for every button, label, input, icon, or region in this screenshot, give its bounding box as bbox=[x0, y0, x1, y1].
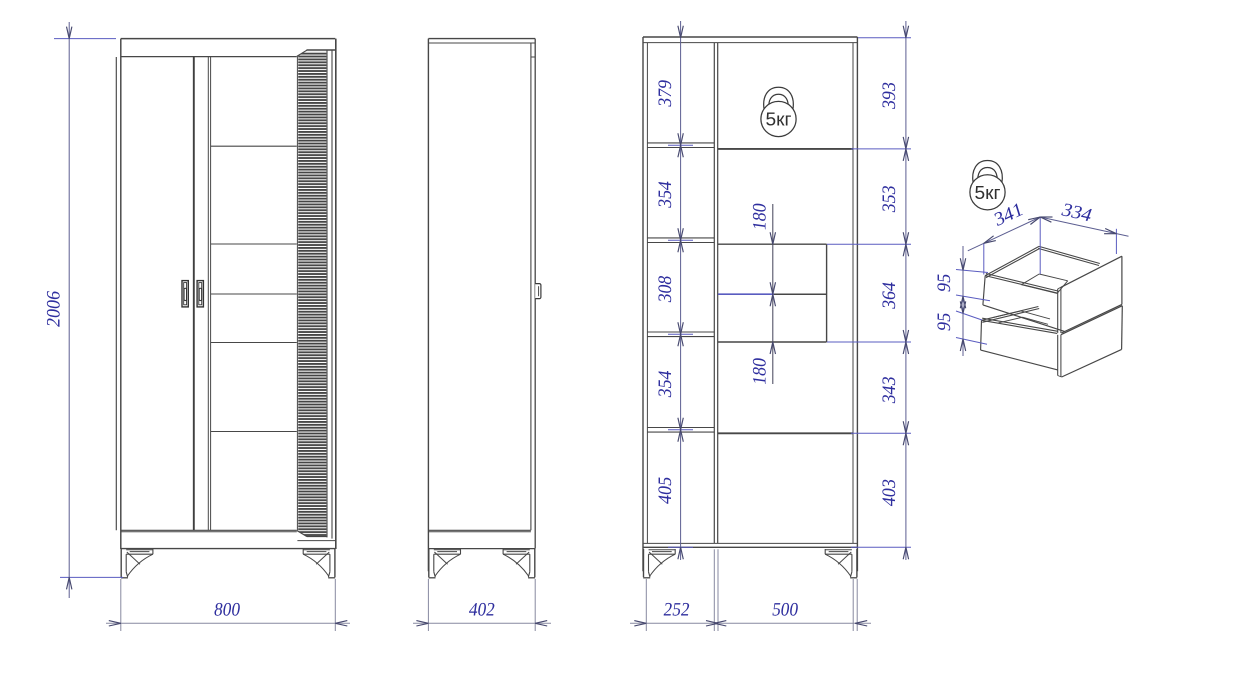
svg-text:500: 500 bbox=[771, 599, 800, 620]
svg-text:403: 403 bbox=[879, 478, 900, 508]
svg-text:180: 180 bbox=[750, 356, 771, 386]
svg-text:343: 343 bbox=[879, 375, 900, 405]
svg-text:5кг: 5кг bbox=[975, 183, 1001, 203]
svg-text:364: 364 bbox=[879, 280, 900, 310]
svg-text:800: 800 bbox=[213, 599, 242, 620]
svg-text:354: 354 bbox=[655, 179, 676, 209]
svg-text:95: 95 bbox=[934, 311, 955, 332]
svg-text:354: 354 bbox=[655, 369, 676, 399]
svg-text:379: 379 bbox=[655, 78, 676, 108]
svg-text:405: 405 bbox=[655, 475, 676, 505]
svg-text:2006: 2006 bbox=[43, 289, 64, 328]
svg-text:353: 353 bbox=[879, 184, 900, 214]
svg-text:402: 402 bbox=[467, 599, 496, 620]
svg-text:308: 308 bbox=[655, 274, 676, 304]
svg-text:5кг: 5кг bbox=[766, 110, 792, 130]
svg-text:252: 252 bbox=[662, 599, 691, 620]
svg-text:95: 95 bbox=[934, 272, 955, 293]
svg-text:393: 393 bbox=[879, 81, 900, 111]
svg-text:180: 180 bbox=[750, 202, 771, 232]
